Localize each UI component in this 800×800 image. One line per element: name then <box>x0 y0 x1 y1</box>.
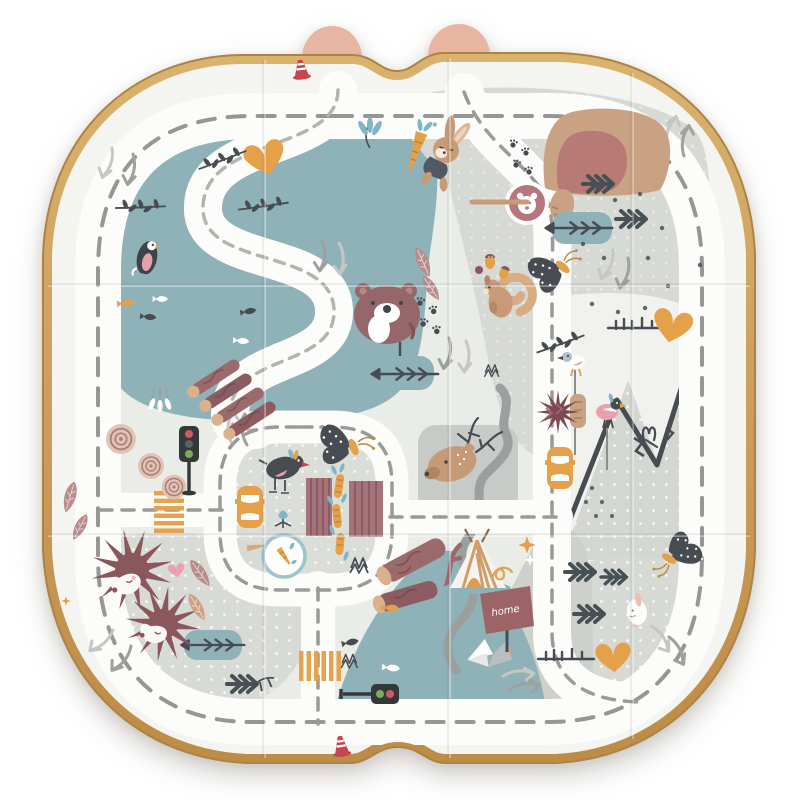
mat-surface: home <box>46 56 754 762</box>
bear <box>354 283 420 344</box>
toy-car-east <box>545 447 575 489</box>
play-mat: home <box>46 24 754 762</box>
toy-car-west <box>235 486 265 528</box>
carrot-badge <box>263 535 305 577</box>
photo-canvas: home <box>0 0 800 800</box>
play-mat-photo: home <box>0 0 800 800</box>
